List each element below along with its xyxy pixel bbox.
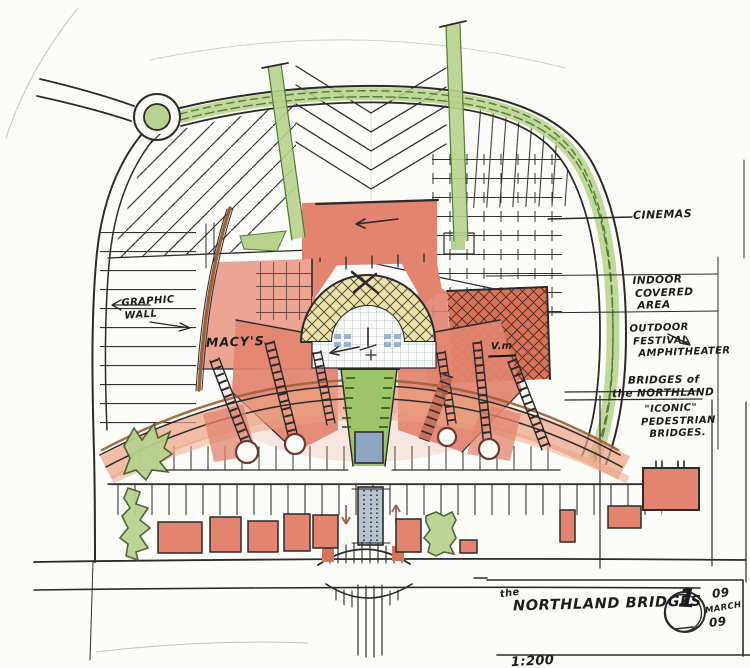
retail-pad	[284, 514, 310, 551]
date-day: 09	[711, 586, 730, 600]
retail-pad	[560, 510, 575, 542]
label-macys: MACY'S	[206, 335, 265, 350]
retail-pad	[396, 519, 421, 552]
retail-pad	[158, 522, 202, 553]
cinema-building	[302, 199, 437, 266]
bridge-tower	[236, 441, 258, 463]
outparcel-building	[608, 506, 641, 528]
bridge-tower	[479, 439, 499, 459]
label-iconic-pedestrian-bridges: "ICONIC" PEDESTRIAN BRIDGES.	[640, 402, 716, 442]
label-bridges-of-the-northland: BRIDGES of the NORTHLAND	[628, 373, 715, 399]
label-vm: V.m	[488, 341, 516, 357]
label-indoor-covered-area: INDOOR COVERED AREA	[632, 273, 694, 313]
label-graphic-wall: GRAPHIC WALL	[121, 294, 176, 323]
retail-pad	[210, 517, 241, 552]
roundabout-island	[144, 104, 170, 130]
shrub	[424, 512, 456, 556]
water-feature	[355, 432, 383, 463]
road-feeder-upper	[40, 79, 134, 106]
date-year: 09	[708, 615, 727, 629]
retail-pad	[248, 521, 278, 552]
outparcel-building	[643, 468, 699, 510]
retail-pad	[313, 515, 338, 548]
sheet-number: 1	[678, 593, 697, 606]
bridge-tower	[438, 428, 456, 446]
bridge-tower	[285, 434, 305, 454]
road-south-upper	[34, 559, 746, 562]
road-south-lower	[34, 587, 700, 590]
retail-pad	[460, 540, 477, 553]
site-plan-sketch: CINEMAS INDOOR COVERED AREA OUTDOOR FEST…	[0, 0, 750, 668]
label-outdoor-festival-amphitheater: OUTDOOR FESTIVAL AMPHITHEATER	[629, 320, 730, 361]
label-cinemas: CINEMAS	[633, 208, 692, 223]
macys-covered-grid	[256, 262, 312, 320]
scale-label: 1:200	[511, 655, 555, 668]
